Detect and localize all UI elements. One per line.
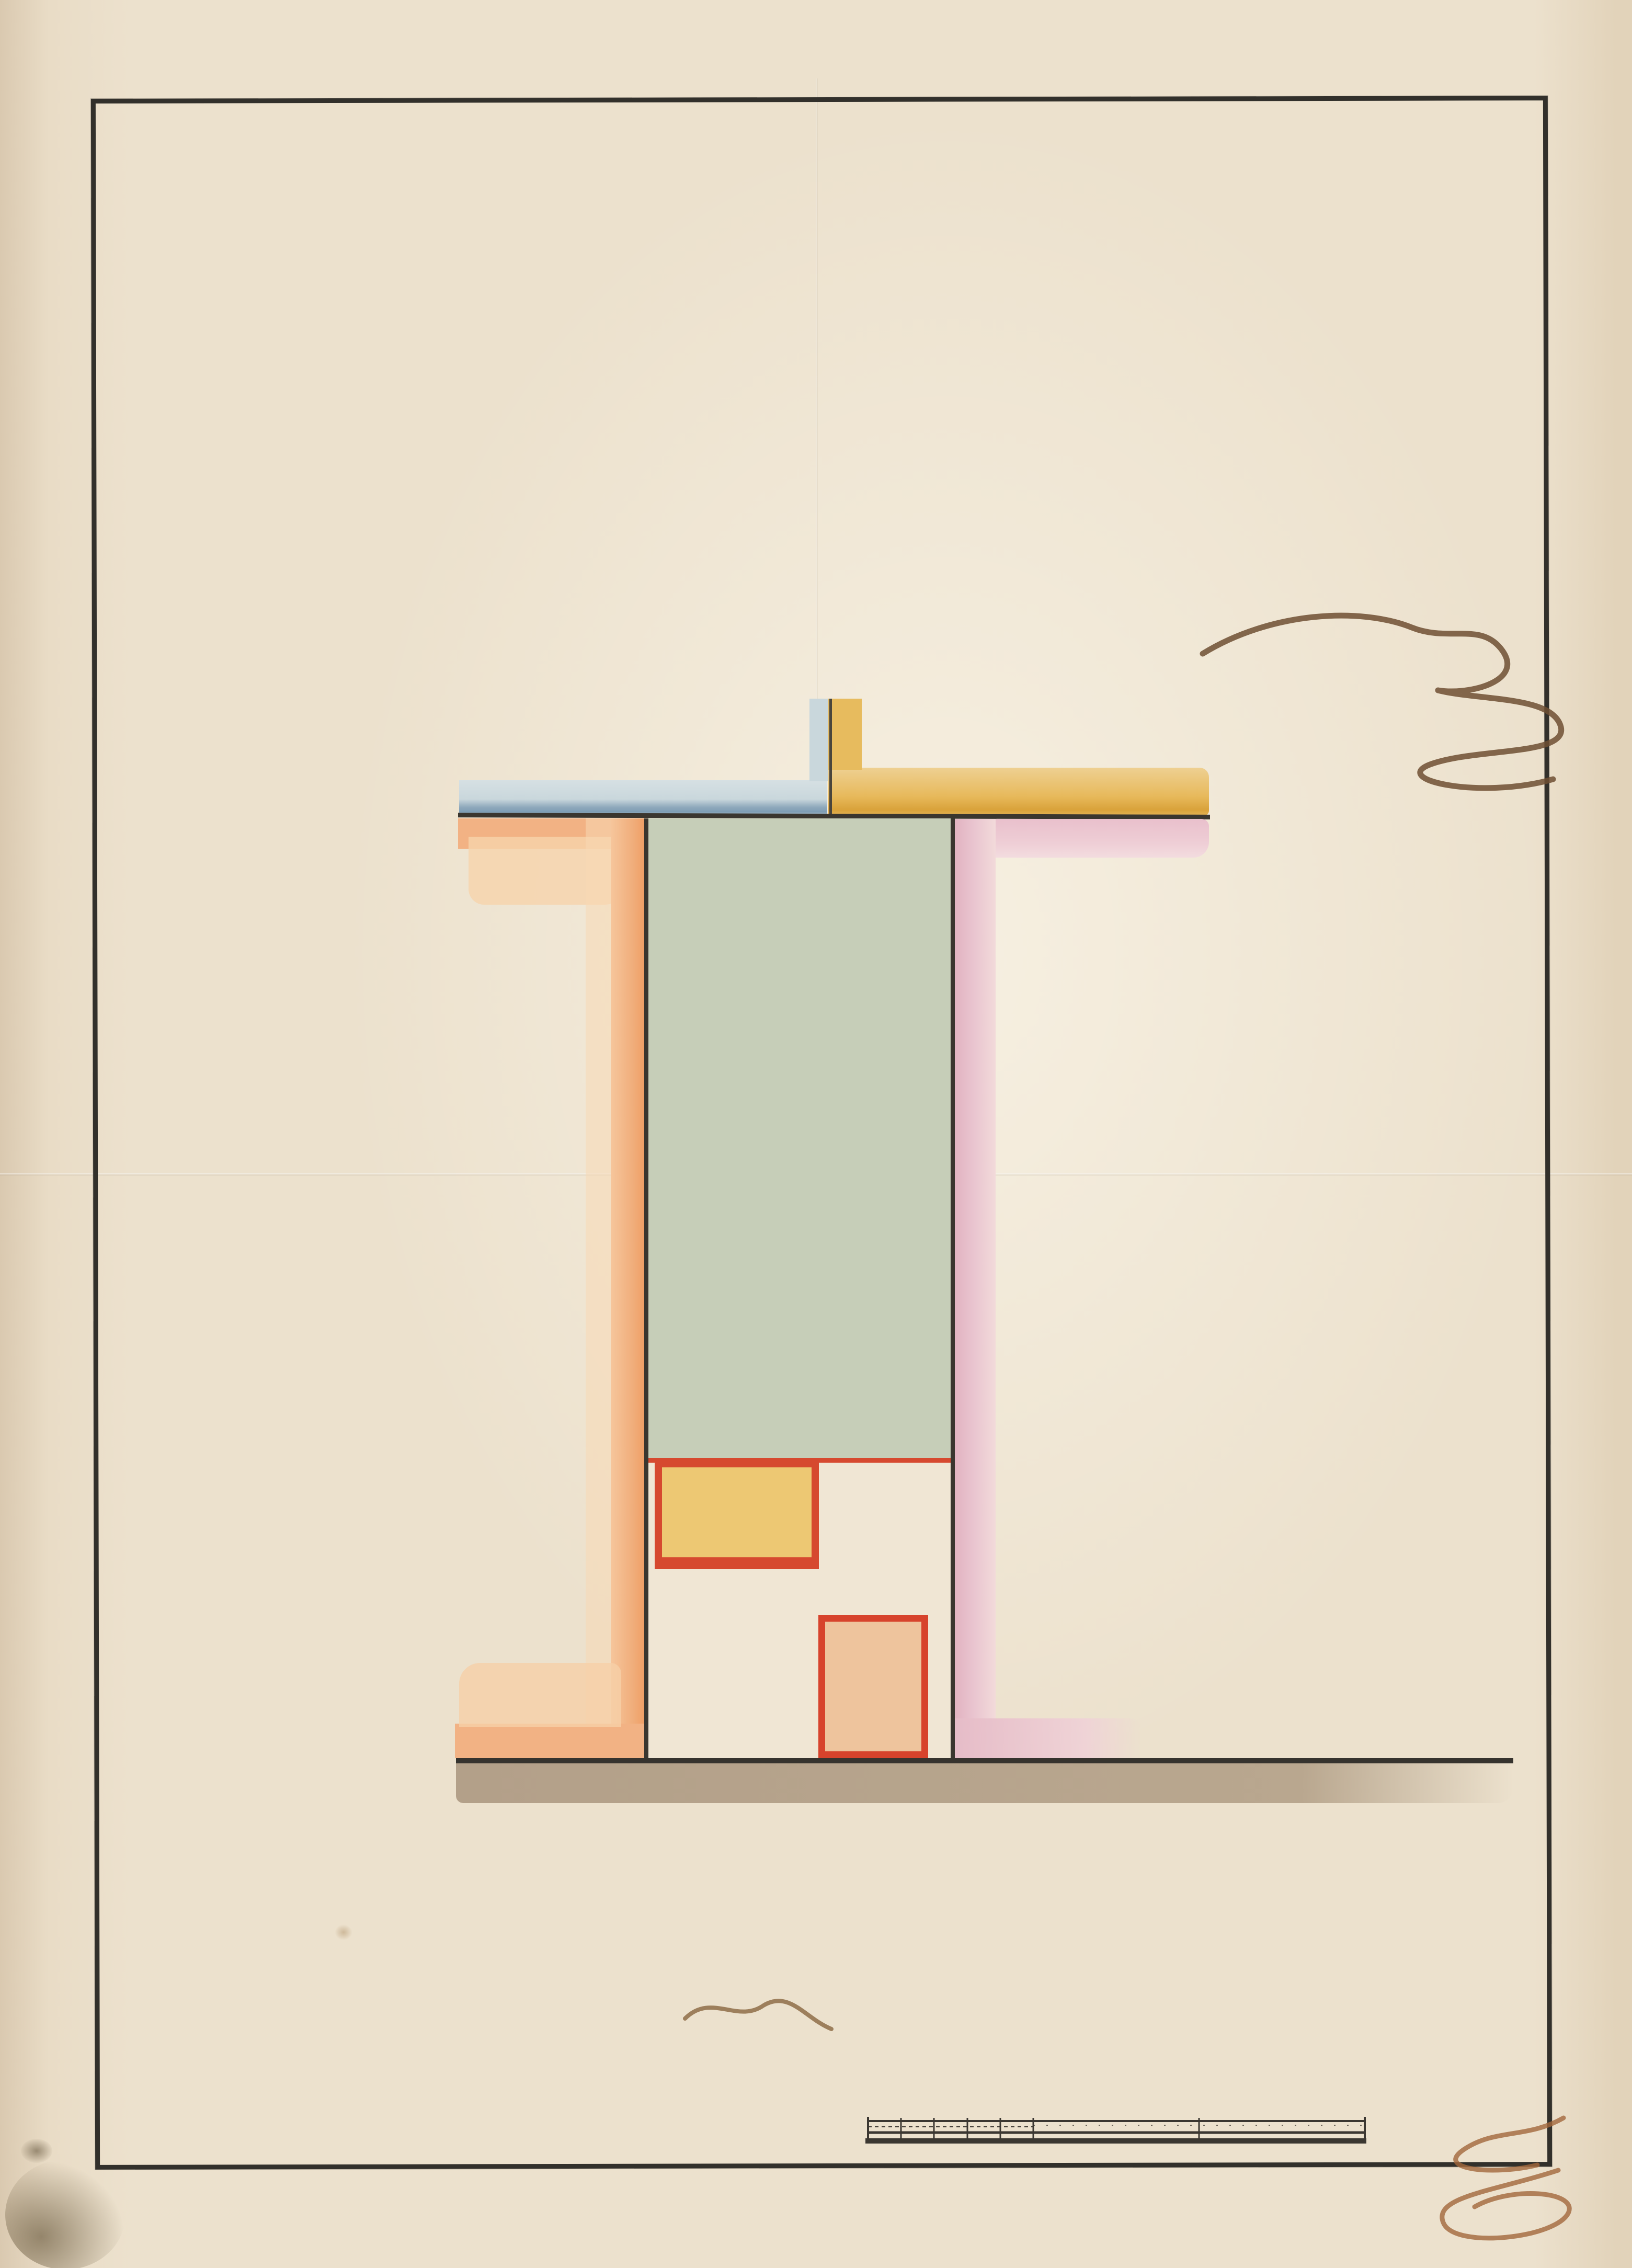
- boundary-seam-line: [829, 699, 832, 816]
- plot-right-line: [951, 818, 955, 1760]
- orange-band-glow: [586, 818, 611, 1760]
- scanned-paper: [0, 0, 1632, 2268]
- plot-left-line: [644, 818, 648, 1760]
- orange-band-glow: [459, 1663, 621, 1727]
- yellow-boundary-band: [828, 768, 1209, 816]
- blue-boundary-band: [459, 780, 827, 815]
- scale-ruler: [860, 2113, 1378, 2152]
- ink-spot: [21, 2139, 52, 2163]
- house: [818, 1615, 928, 1758]
- pink-band-bottom-arm: [955, 1718, 1141, 1758]
- scale-flourish-swirl: [1339, 2107, 1584, 2264]
- blue-boundary-band-arm: [809, 699, 828, 781]
- signature-flourish: [1187, 591, 1584, 816]
- orange-band-vertical: [611, 818, 644, 1760]
- street-wash: [456, 1763, 1513, 1803]
- garden-bushes: [648, 818, 951, 1459]
- garden-area: [648, 818, 951, 1459]
- street-line: [456, 1758, 1513, 1763]
- scale-title-flourish: [680, 1987, 847, 2045]
- yellow-boundary-band-arm: [828, 699, 862, 770]
- pink-band-vertical: [955, 819, 996, 1758]
- corner-stain: [5, 2160, 125, 2268]
- orange-band-bottom-arm: [455, 1724, 644, 1758]
- shed: [655, 1460, 819, 1569]
